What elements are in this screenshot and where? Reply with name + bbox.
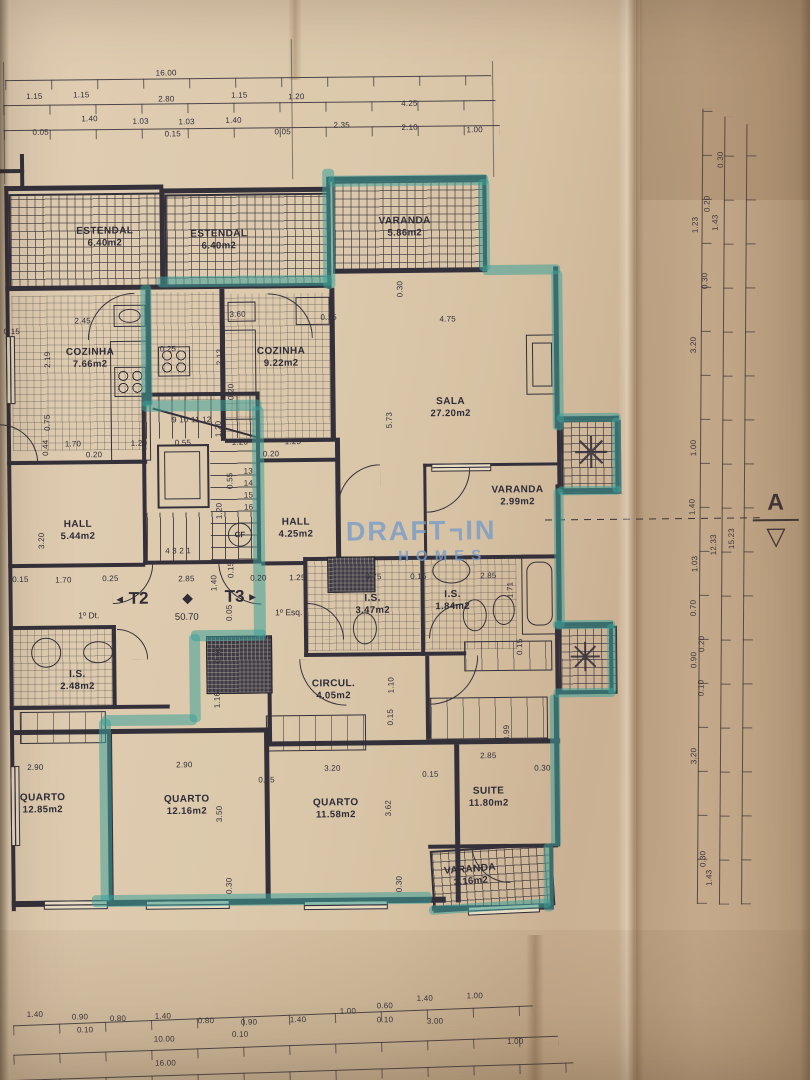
highlight-stroke xyxy=(102,714,197,726)
dim-label: 3.00 xyxy=(427,1018,443,1026)
dim-label: 0.20 xyxy=(263,450,279,458)
wall xyxy=(10,704,170,710)
dim-label: 0.15 xyxy=(227,562,235,578)
dim-label: 1.10 xyxy=(387,677,395,693)
dim-label: 1.20 xyxy=(288,93,304,101)
room-label: HALL5.44m2 xyxy=(60,519,95,542)
a: 4.05m2 xyxy=(312,690,355,702)
wall xyxy=(261,561,305,565)
dim-label: 16.00 xyxy=(155,1059,176,1067)
highlight-stroke xyxy=(189,634,201,722)
dim-label: 2.85 xyxy=(480,752,496,760)
dim-label: 0.20 xyxy=(250,574,266,582)
dim-label: 1.43 xyxy=(712,215,720,231)
dim-label: 3.99 xyxy=(503,725,511,741)
elevator-cab xyxy=(164,451,201,499)
dim-label: 0.70 xyxy=(690,600,698,616)
dim-label: 1.03 xyxy=(178,118,194,126)
dim-label: 10.00 xyxy=(154,1035,175,1043)
span: QUARTO xyxy=(164,794,210,805)
dim-label: 0.20 xyxy=(86,451,102,459)
dim-label: 1.03 xyxy=(132,118,148,126)
watermark-corner-icon xyxy=(450,528,462,540)
highlight-stroke xyxy=(482,264,560,275)
stair-number: 16 xyxy=(244,504,253,512)
dim-chain-right-3 xyxy=(741,124,756,904)
dim-label: 3.20 xyxy=(38,533,46,549)
watermark-draft: DRAFT xyxy=(346,516,448,547)
dim-label: 1.00 xyxy=(467,992,483,1000)
dim-label: 0.60 xyxy=(377,1002,393,1010)
room-label: VARANDA5.86m2 xyxy=(379,215,431,239)
room-label: SALA27.20m2 xyxy=(430,396,471,419)
dim-chain-right-2 xyxy=(719,117,735,905)
section-arrow-icon: ▽ xyxy=(766,525,785,550)
highlight-stroke xyxy=(191,629,266,641)
dim-chain-top-1 xyxy=(5,75,491,90)
dim-label: 1.40 xyxy=(155,1012,171,1020)
room-label: COZINHA7.66m2 xyxy=(66,347,115,371)
section-marker-label: A xyxy=(767,489,784,516)
unit-t2-label: T2 xyxy=(129,589,149,609)
wall xyxy=(4,185,162,192)
dim-label: 2.90 xyxy=(176,761,192,769)
dim-label: 1.40 xyxy=(27,1011,43,1019)
dim-label: 1.03 xyxy=(691,556,699,572)
dim-label: 0.15 xyxy=(258,776,274,784)
dim-label: 0.30 xyxy=(534,764,550,772)
dim-label: 0.90 xyxy=(241,1019,257,1027)
dim-label: 0.20 xyxy=(703,196,711,212)
toilet xyxy=(353,612,377,644)
a: 2.99m2 xyxy=(492,496,544,508)
dim-label: 1.15 xyxy=(73,91,89,99)
dim-label: 1.00 xyxy=(690,440,698,456)
a: 11.58m2 xyxy=(313,809,359,821)
dim-label: 0.10 xyxy=(232,1031,248,1039)
highlight-stroke xyxy=(550,694,562,846)
bathtub-basin xyxy=(526,561,553,625)
a: 7.66m2 xyxy=(66,358,114,370)
cf-label: CF xyxy=(235,530,246,539)
dim-label: 2.85 xyxy=(178,575,194,583)
dim-label: 0.75 xyxy=(44,415,52,431)
room-label: QUARTO12.85m2 xyxy=(20,792,66,815)
highlight-stroke xyxy=(553,488,564,628)
generated-labels: ESTENDAL6.40m2ESTENDAL6.40m2VARANDA5.86m… xyxy=(0,0,804,4)
plant-icon: ✳ xyxy=(568,638,602,678)
dim-label: 2.19 xyxy=(44,351,52,367)
a: 5.86m2 xyxy=(379,227,431,239)
dim-label: 0.30 xyxy=(396,281,404,297)
a: 3.47m2 xyxy=(355,604,390,616)
span: QUARTO xyxy=(313,797,359,808)
dim-label: 3.20 xyxy=(690,748,698,764)
dim-label: 1.40 xyxy=(225,117,241,125)
a: 5.44m2 xyxy=(61,531,96,543)
dim-chain-bottom-2 xyxy=(13,1036,558,1065)
span: QUARTO xyxy=(20,792,66,803)
dim-label: 1.71 xyxy=(506,582,514,598)
watermark-brand: DRAFTIN xyxy=(346,515,497,548)
dim-label: 0.25 xyxy=(102,575,118,583)
wardrobe xyxy=(20,711,106,744)
room-label: I.S.2.48m2 xyxy=(60,669,95,692)
dim-label: 4.75 xyxy=(439,315,455,323)
highlight-stroke xyxy=(607,624,617,694)
fireplace-inner xyxy=(532,342,552,386)
dim-label: 0.20 xyxy=(698,636,706,652)
dim-label: 0.15 xyxy=(165,130,181,138)
room-label: ESTENDAL6.40m2 xyxy=(190,228,247,252)
room-label: VARANDA2.99m2 xyxy=(491,484,543,508)
leader-line xyxy=(492,61,494,177)
dim-label: 1.25 xyxy=(289,574,305,582)
dim-label: 16.00 xyxy=(156,69,177,77)
span: CIRCUL. xyxy=(312,678,355,689)
wardrobe xyxy=(430,697,548,740)
dim-label: 0.55 xyxy=(175,439,191,447)
dim-label: 0.15 xyxy=(410,573,426,581)
dim-label: 1.70 xyxy=(55,576,71,584)
dim-label: 2.90 xyxy=(27,764,43,772)
span: VARANDA xyxy=(379,215,431,227)
dim-label: 15.23 xyxy=(728,528,736,549)
room-label: SUITE11.80m2 xyxy=(469,785,509,808)
room-label: COZINHA9.22m2 xyxy=(257,346,306,370)
dim-label: 1.15 xyxy=(26,93,42,101)
dim-label: 1.20 xyxy=(215,421,223,437)
level-label: 50.70 xyxy=(175,612,199,623)
shower xyxy=(206,635,273,694)
dim-label: 2.10 xyxy=(401,124,417,132)
room-label: CIRCUL.4.05m2 xyxy=(312,678,356,701)
stair-numbers-top: 9 10 11 12 xyxy=(172,416,211,424)
diamond-icon: ◆ xyxy=(183,590,193,606)
dim-label: 0.30 xyxy=(396,876,404,892)
highlight-stroke xyxy=(557,486,621,496)
room-label: I.S.3.47m2 xyxy=(355,593,390,616)
window xyxy=(6,336,16,404)
dim-label: 2.35 xyxy=(333,122,349,130)
room-label: ESTENDAL6.40m2 xyxy=(76,225,133,249)
watermark-homes: HOMES xyxy=(398,547,488,565)
section-marker-line xyxy=(753,519,799,521)
dim-label: 0.15 xyxy=(4,328,20,336)
a: 1.84m2 xyxy=(435,601,470,613)
a: 12.16m2 xyxy=(164,805,210,817)
window xyxy=(10,766,20,846)
dim-label: 0.10 xyxy=(377,1016,393,1024)
blueprint-photo: ✳ ✳ A ▽ ◄ T2 ◆ T3 ► 1º Dt. 50.70 1º Esq.… xyxy=(0,0,810,1080)
dim-chain-bottom-3 xyxy=(14,1062,574,1080)
dim-label: 0.05 xyxy=(32,129,48,137)
dim-label: 1.15 xyxy=(231,92,247,100)
wall xyxy=(264,727,271,902)
highlight-stroke xyxy=(328,174,488,187)
washbasin xyxy=(31,638,61,668)
plant-icon: ✳ xyxy=(572,432,609,476)
a: 2.48m2 xyxy=(60,681,95,693)
span: I.S. xyxy=(69,669,86,680)
stair-number: 14 xyxy=(244,480,253,488)
highlight-stroke xyxy=(142,399,262,411)
dim-label: 0.90 xyxy=(72,1013,88,1021)
room-label: HALL4.25m2 xyxy=(278,516,313,539)
dim-label: 0.15 xyxy=(516,639,524,655)
dim-label: 0.55 xyxy=(226,473,234,489)
highlight-stroke xyxy=(478,179,490,271)
watermark-in: IN xyxy=(465,515,496,545)
span: HALL xyxy=(64,519,92,530)
dim-chain-top-2 xyxy=(3,100,495,115)
dim-label: 0.25 xyxy=(160,345,176,353)
room-label: I.S.1.84m2 xyxy=(435,589,470,612)
dim-chain-top-3 xyxy=(4,125,500,140)
dim-label: 0.15 xyxy=(12,576,28,584)
dim-label: 1.40 xyxy=(290,1016,306,1024)
door-arc xyxy=(117,629,148,660)
highlight-stroke xyxy=(612,418,622,493)
dim-label: 1.40 xyxy=(81,115,97,123)
wall xyxy=(259,458,339,463)
highlight-stroke xyxy=(551,270,564,430)
dim-label: 3.62 xyxy=(385,800,393,816)
highlight-stroke xyxy=(554,688,616,698)
span: SALA xyxy=(436,396,465,407)
wall xyxy=(20,154,24,186)
dim-label: 3.60 xyxy=(229,311,245,319)
dim-label: 1.25 xyxy=(285,438,301,446)
span: I.S. xyxy=(364,593,381,604)
dim-label: 3.50 xyxy=(216,806,224,822)
dim-label: 2.85 xyxy=(480,572,496,580)
span: COZINHA xyxy=(66,347,114,359)
dim-label: 3.20 xyxy=(324,765,340,773)
dim-label: 0.80 xyxy=(198,1017,214,1025)
dim-label: 0.30 xyxy=(717,151,725,167)
highlight-stroke xyxy=(157,275,332,288)
dim-label: 12.33 xyxy=(710,534,718,555)
dim-label: 0.90 xyxy=(690,652,698,668)
a: 12.85m2 xyxy=(20,804,66,816)
dim-label: 2.45 xyxy=(74,317,90,325)
a: 9.22m2 xyxy=(257,357,305,369)
dim-label: 0.15 xyxy=(422,771,438,779)
dim-label: 2.13 xyxy=(216,349,224,365)
stair-number: 13 xyxy=(244,468,253,476)
dim-label: 1.70 xyxy=(65,440,81,448)
door-arc xyxy=(337,464,380,507)
span: ESTENDAL xyxy=(76,225,133,237)
a: 6.40m2 xyxy=(190,240,247,252)
dim-label: 4.25 xyxy=(401,100,417,108)
highlight-stroke xyxy=(322,169,335,289)
room-label: VARANDA3.16m2 xyxy=(444,862,498,889)
dim-label: 0.80 xyxy=(110,1015,126,1023)
unit-arrow-left-icon: ◄ xyxy=(114,594,125,606)
highlight-stroke xyxy=(99,719,113,901)
dim-label: 1.00 xyxy=(466,126,482,134)
wardrobe xyxy=(464,640,552,671)
door-arc xyxy=(425,467,470,512)
highlight-stroke xyxy=(553,620,615,630)
dim-label: 0.20 xyxy=(227,384,235,400)
dim-label: 1.23 xyxy=(692,217,700,233)
floor-plan: ✳ ✳ A ▽ ◄ T2 ◆ T3 ► 1º Dt. 50.70 1º Esq.… xyxy=(0,0,810,1080)
dim-label: 1.16 xyxy=(214,692,222,708)
dim-label: 1.20 xyxy=(131,440,147,448)
span: VARANDA xyxy=(491,484,543,496)
dim-label: 1.40 xyxy=(417,995,433,1003)
dim-label: 0.30 xyxy=(701,273,709,289)
span: COZINHA xyxy=(257,346,305,358)
dim-label: 0.10 xyxy=(697,680,705,696)
highlight-stroke xyxy=(140,285,152,407)
span: HALL xyxy=(282,516,310,527)
dim-label: 0.44 xyxy=(42,440,50,456)
dim-label: 0.75 xyxy=(365,573,381,581)
dim-label: 0.05 xyxy=(274,128,290,136)
dim-label: 0.10 xyxy=(77,1026,93,1034)
a: 4.25m2 xyxy=(279,528,314,540)
wardrobe xyxy=(266,714,366,751)
dim-label: 1.43 xyxy=(705,870,713,886)
unit-t3-floor: 1º Esq. xyxy=(275,607,302,617)
a: 11.80m2 xyxy=(469,797,509,809)
unit-t2-floor: 1º Dt. xyxy=(78,610,99,620)
dim-label: 0.60 xyxy=(214,647,222,663)
span: ESTENDAL xyxy=(190,228,247,240)
dim-label: 2.80 xyxy=(158,95,174,103)
dim-label: 1.20 xyxy=(216,503,224,519)
bidet xyxy=(493,595,515,625)
dim-label: 1.00 xyxy=(507,1038,523,1046)
span: SUITE xyxy=(473,785,505,796)
room-label: QUARTO11.58m2 xyxy=(313,797,359,820)
dim-label: 0.05 xyxy=(226,605,234,621)
dim-label: 1.20 xyxy=(232,439,248,447)
dim-label: 0.15 xyxy=(387,709,395,725)
dim-label: 1.40 xyxy=(210,575,218,591)
unit-arrow-right-icon: ► xyxy=(247,592,258,604)
dim-label: 1.40 xyxy=(689,499,697,515)
dim-label: 1.00 xyxy=(340,1008,356,1016)
span: I.S. xyxy=(444,589,461,600)
stair-number: 15 xyxy=(244,492,253,500)
dim-label: 0.15 xyxy=(320,314,336,322)
dim-label: 0.30 xyxy=(226,878,234,894)
dim-label: 5.73 xyxy=(386,412,394,428)
stair-numbers-bottom: 4 3 2 1 xyxy=(165,547,191,555)
a: 27.20m2 xyxy=(430,408,470,420)
a: 6.40m2 xyxy=(76,237,133,249)
dim-label: 0.30 xyxy=(699,851,707,867)
dim-label: 3.20 xyxy=(690,337,698,353)
room-label: QUARTO12.16m2 xyxy=(164,794,210,817)
wall xyxy=(329,288,336,440)
